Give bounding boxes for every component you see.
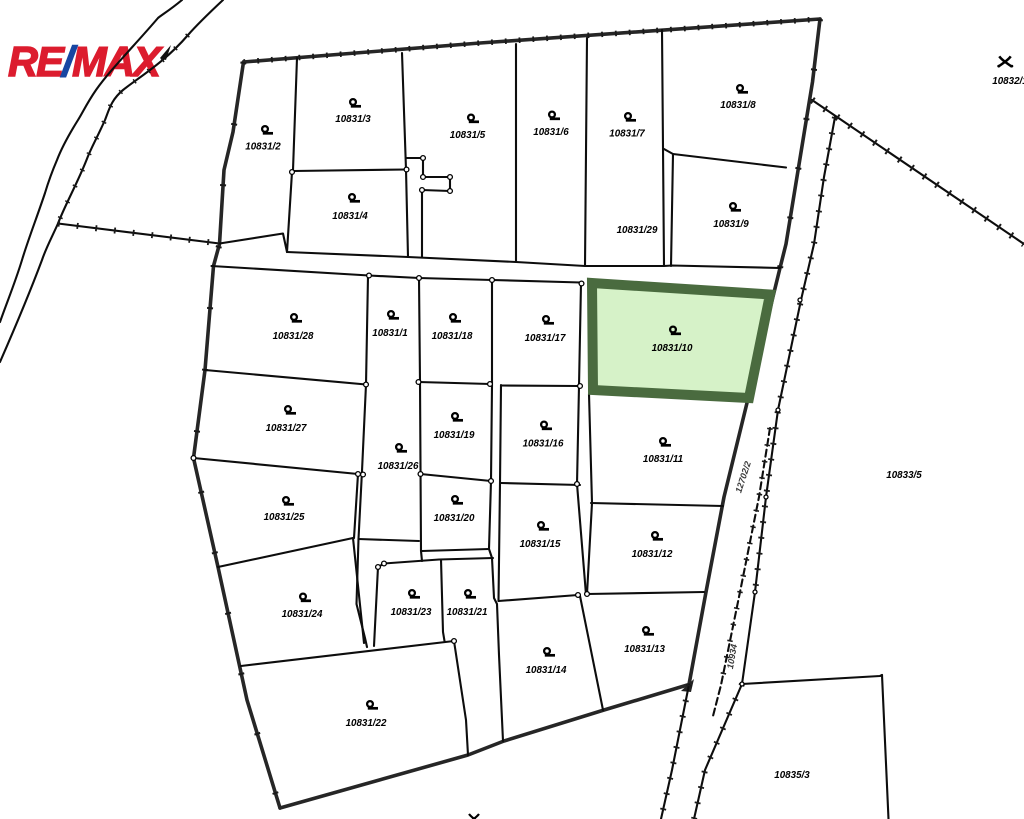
svg-text:10831/26: 10831/26 — [378, 461, 419, 472]
svg-text:10831/22: 10831/22 — [346, 718, 387, 729]
svg-text:10831/10: 10831/10 — [652, 343, 693, 354]
svg-text:10831/24: 10831/24 — [282, 609, 323, 620]
svg-text:10831/25: 10831/25 — [264, 512, 305, 523]
svg-text:10831/20: 10831/20 — [434, 513, 475, 524]
svg-text:10831/8: 10831/8 — [720, 100, 756, 111]
svg-text:10831/5: 10831/5 — [450, 130, 486, 141]
svg-text:10831/21: 10831/21 — [447, 607, 488, 618]
svg-text:10831/17: 10831/17 — [525, 333, 566, 344]
svg-text:10831/14: 10831/14 — [526, 665, 567, 676]
svg-text:10831/6: 10831/6 — [533, 127, 569, 138]
svg-text:10833/5: 10833/5 — [886, 470, 922, 481]
svg-text:10831/11: 10831/11 — [643, 454, 683, 465]
svg-text:10831/9: 10831/9 — [713, 219, 749, 230]
svg-text:10831/27: 10831/27 — [266, 423, 307, 434]
svg-text:10831/29: 10831/29 — [617, 225, 658, 236]
svg-text:10831/7: 10831/7 — [609, 129, 645, 140]
svg-text:10831/28: 10831/28 — [273, 331, 314, 342]
svg-text:10831/2: 10831/2 — [245, 142, 281, 153]
svg-text:10835/3: 10835/3 — [774, 770, 810, 781]
svg-text:10831/13: 10831/13 — [624, 644, 665, 655]
svg-text:10832/1: 10832/1 — [992, 76, 1024, 87]
svg-text:10831/3: 10831/3 — [335, 114, 371, 125]
svg-text:10831/15: 10831/15 — [520, 539, 561, 550]
svg-text:10831/1: 10831/1 — [372, 328, 407, 339]
svg-text:10831/18: 10831/18 — [432, 331, 473, 342]
svg-text:10831/16: 10831/16 — [523, 439, 564, 450]
svg-text:10831/19: 10831/19 — [434, 430, 475, 441]
svg-text:10831/23: 10831/23 — [391, 607, 432, 618]
svg-text:10831/4: 10831/4 — [332, 211, 368, 222]
svg-text:10831/12: 10831/12 — [632, 549, 673, 560]
